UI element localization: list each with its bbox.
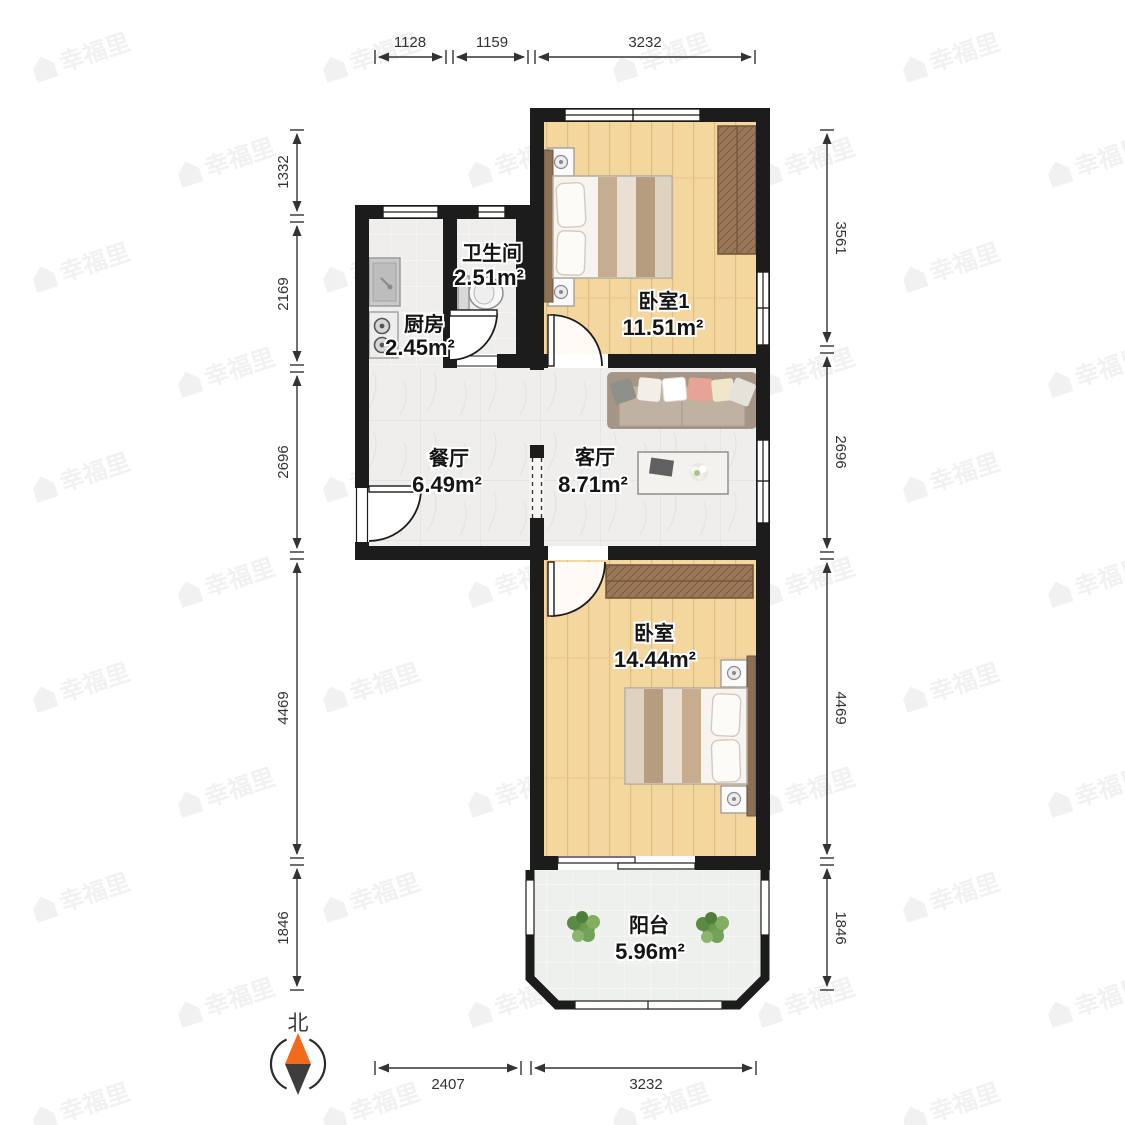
bed-blanket <box>663 689 682 783</box>
door-leaf <box>450 310 497 316</box>
pillow <box>687 377 713 402</box>
window-balcony-left <box>526 880 534 935</box>
compass-north-label: 北 <box>288 1012 309 1035</box>
dim-value: 1846 <box>275 911 292 944</box>
room-balcony-floor-texture <box>530 870 765 1005</box>
bedroom1-wardrobe <box>718 126 756 254</box>
window-bedroom1-top <box>565 109 700 121</box>
dim-value: 2407 <box>431 1076 464 1093</box>
pillow <box>711 693 741 736</box>
window-balcony-right <box>761 880 769 935</box>
wall-segment <box>497 354 530 368</box>
room-label-living: 客厅 <box>574 445 615 469</box>
dim-value: 1332 <box>275 155 292 188</box>
room-label-bedroom1: 卧室1 <box>638 289 689 313</box>
dim-value: 1128 <box>394 34 426 51</box>
window-bathroom-top <box>478 206 505 218</box>
wall-segment <box>608 354 756 368</box>
bed-blanket <box>598 177 617 277</box>
window-balcony-bottom <box>575 1001 722 1009</box>
wall-segment <box>530 354 548 368</box>
room-label-bathroom: 卫生间 <box>462 242 522 265</box>
room-label-kitchen: 厨房 <box>404 312 444 336</box>
dim-value: 3561 <box>832 221 849 254</box>
room-area-bedroom1: 11.51m² <box>623 315 704 340</box>
room-area-balcony: 5.96m² <box>615 939 685 964</box>
room-area-living: 8.71m² <box>558 472 628 497</box>
dim-value: 4469 <box>832 691 849 724</box>
dim-value: 2696 <box>832 435 849 468</box>
room-area-kitchen: 2.45m² <box>385 335 455 360</box>
dim-value: 3232 <box>629 1076 662 1093</box>
dim-value: 3232 <box>628 34 661 51</box>
bed-blanket <box>636 177 655 277</box>
dim-value: 2169 <box>275 277 292 310</box>
wall-segment <box>530 445 544 458</box>
window-living-right <box>757 440 769 523</box>
window-bedroom1-right <box>757 272 769 345</box>
pillow <box>662 377 687 402</box>
room-label-balcony: 阳台 <box>629 913 669 937</box>
pillow <box>637 377 662 402</box>
wall-segment <box>695 856 770 870</box>
dim-value: 2696 <box>275 445 292 478</box>
room-label-bedroom2: 卧室 <box>634 621 674 645</box>
wall-segment <box>530 856 558 870</box>
dim-value: 1159 <box>476 34 508 51</box>
sofa <box>608 373 757 428</box>
pillow <box>711 740 740 783</box>
floor-plan-canvas: 幸福里 幸福里 <box>0 0 1125 1125</box>
wall-segment <box>530 108 544 370</box>
bed-headboard <box>747 656 756 816</box>
pillow <box>556 182 586 227</box>
dim-value: 4469 <box>275 691 292 724</box>
window-kitchen-top <box>383 206 438 218</box>
wall-segment <box>608 546 756 560</box>
room-area-bedroom2: 14.44m² <box>614 647 696 672</box>
bed-blanket <box>682 689 701 783</box>
door-leaf <box>548 315 554 366</box>
door-leaf <box>548 562 554 616</box>
bedroom2-wardrobe <box>606 565 753 598</box>
bed-blanket <box>644 689 663 783</box>
bed-headboard <box>544 150 553 302</box>
coffee-table <box>638 452 728 494</box>
room-area-dining: 6.49m² <box>412 472 482 497</box>
bathroom-door <box>450 310 497 367</box>
bed-blanket <box>617 177 636 277</box>
room-area-bathroom: 2.51m² <box>454 265 524 290</box>
wall-segment <box>355 546 548 560</box>
bed-blanket <box>626 689 644 783</box>
tray <box>649 458 674 477</box>
kitchen-sink <box>369 258 400 306</box>
entry-opening <box>354 488 370 542</box>
dim-value: 1846 <box>832 911 849 944</box>
dining-living-partition <box>530 458 544 518</box>
wall-segment <box>516 219 530 368</box>
bed-blanket <box>655 177 671 277</box>
pillow <box>556 231 586 276</box>
room-label-dining: 餐厅 <box>429 446 469 470</box>
wall-segment <box>530 560 544 870</box>
floor-plan-page: 幸福里 幸福里 <box>0 0 1125 1125</box>
plant-icon <box>690 463 708 481</box>
